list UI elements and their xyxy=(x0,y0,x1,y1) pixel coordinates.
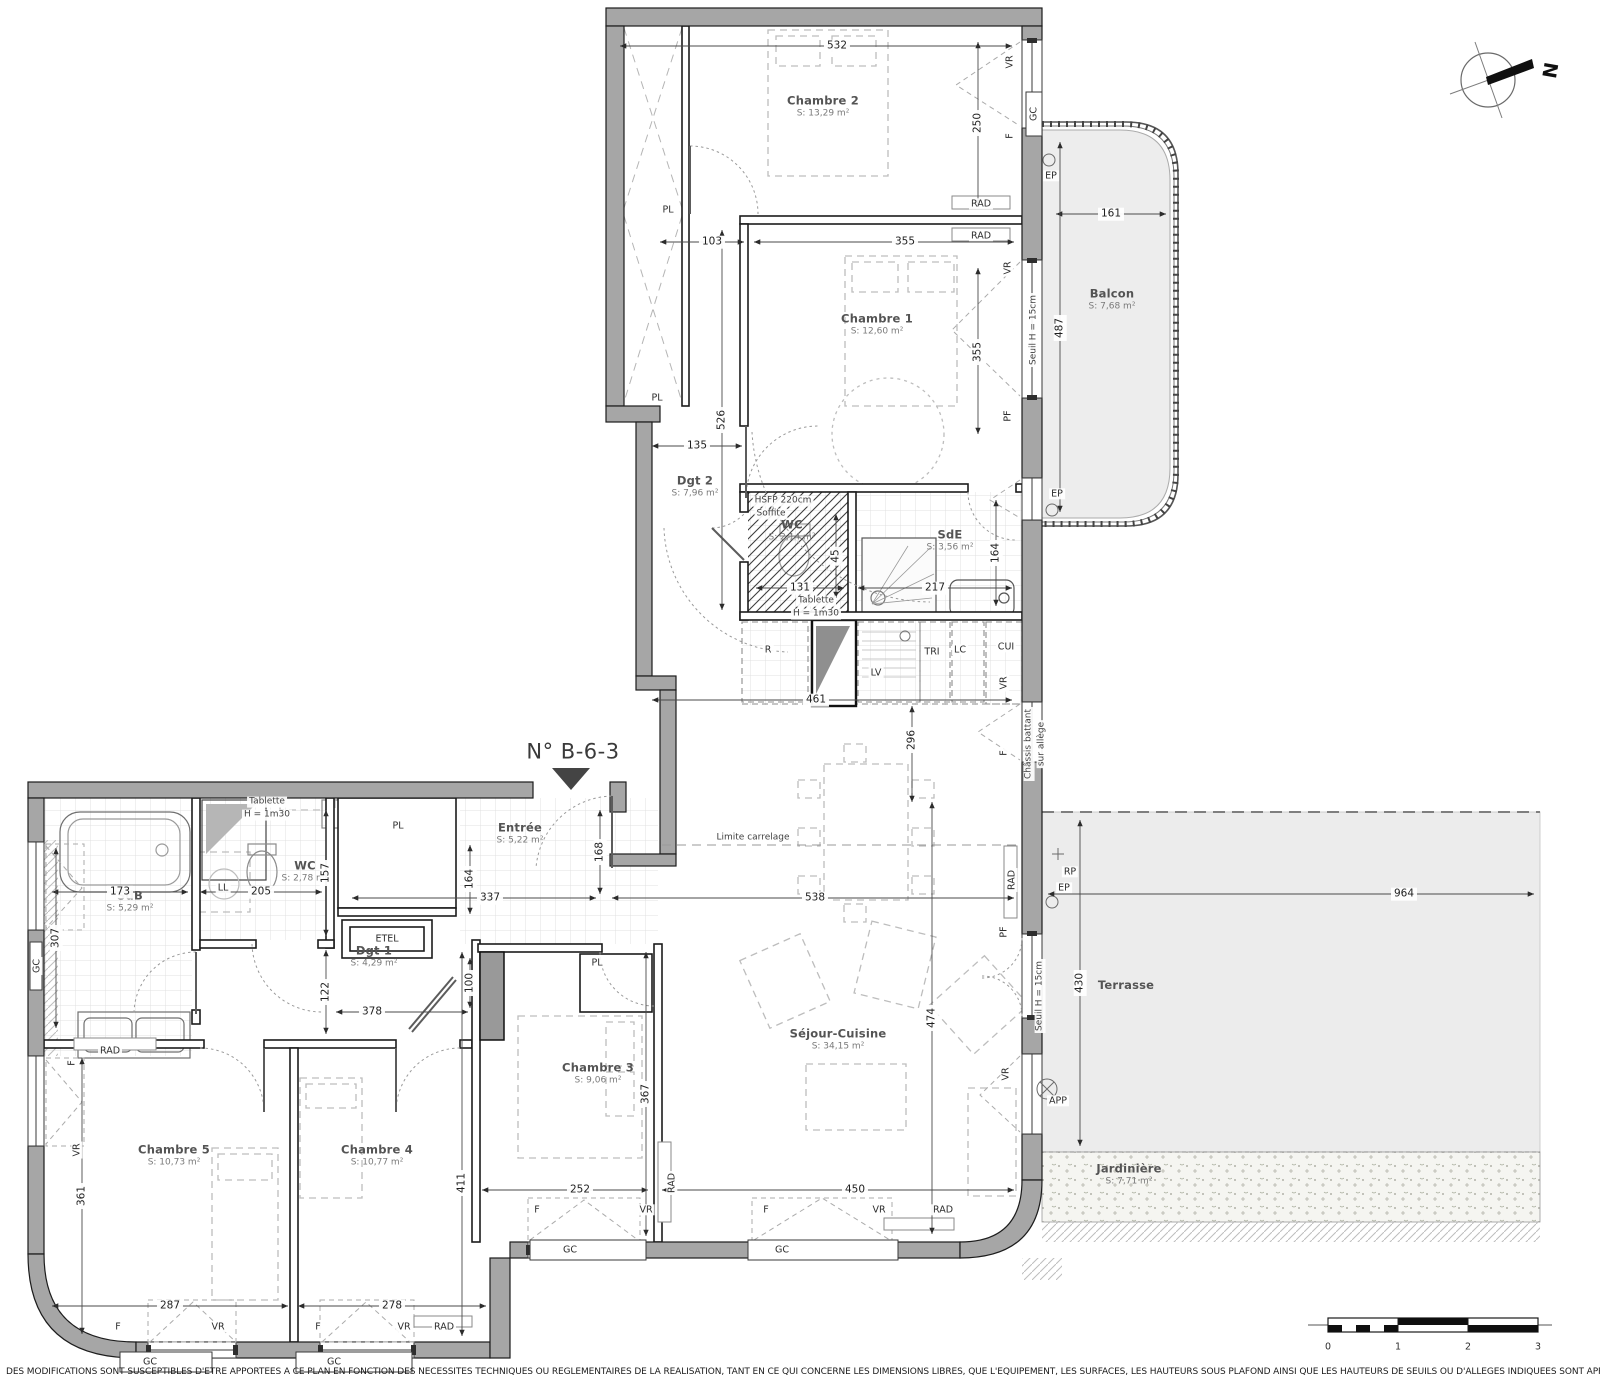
floor-plan-drawing xyxy=(0,0,1600,1383)
duct-shaft xyxy=(480,952,504,1040)
floorplan-canvas: N° B-6-3 N DES MODIFICATIONS SONT SUSCEP… xyxy=(0,0,1600,1383)
balcony-area xyxy=(1042,122,1178,526)
north-arrow-icon xyxy=(1450,42,1534,118)
door-leaves xyxy=(196,146,746,1112)
soffit-hatch xyxy=(748,492,848,612)
entrance-arrow xyxy=(552,768,590,790)
scale-bar xyxy=(1308,1318,1552,1332)
gc-boxes xyxy=(30,92,1042,1372)
terrace-area xyxy=(1022,812,1540,1280)
